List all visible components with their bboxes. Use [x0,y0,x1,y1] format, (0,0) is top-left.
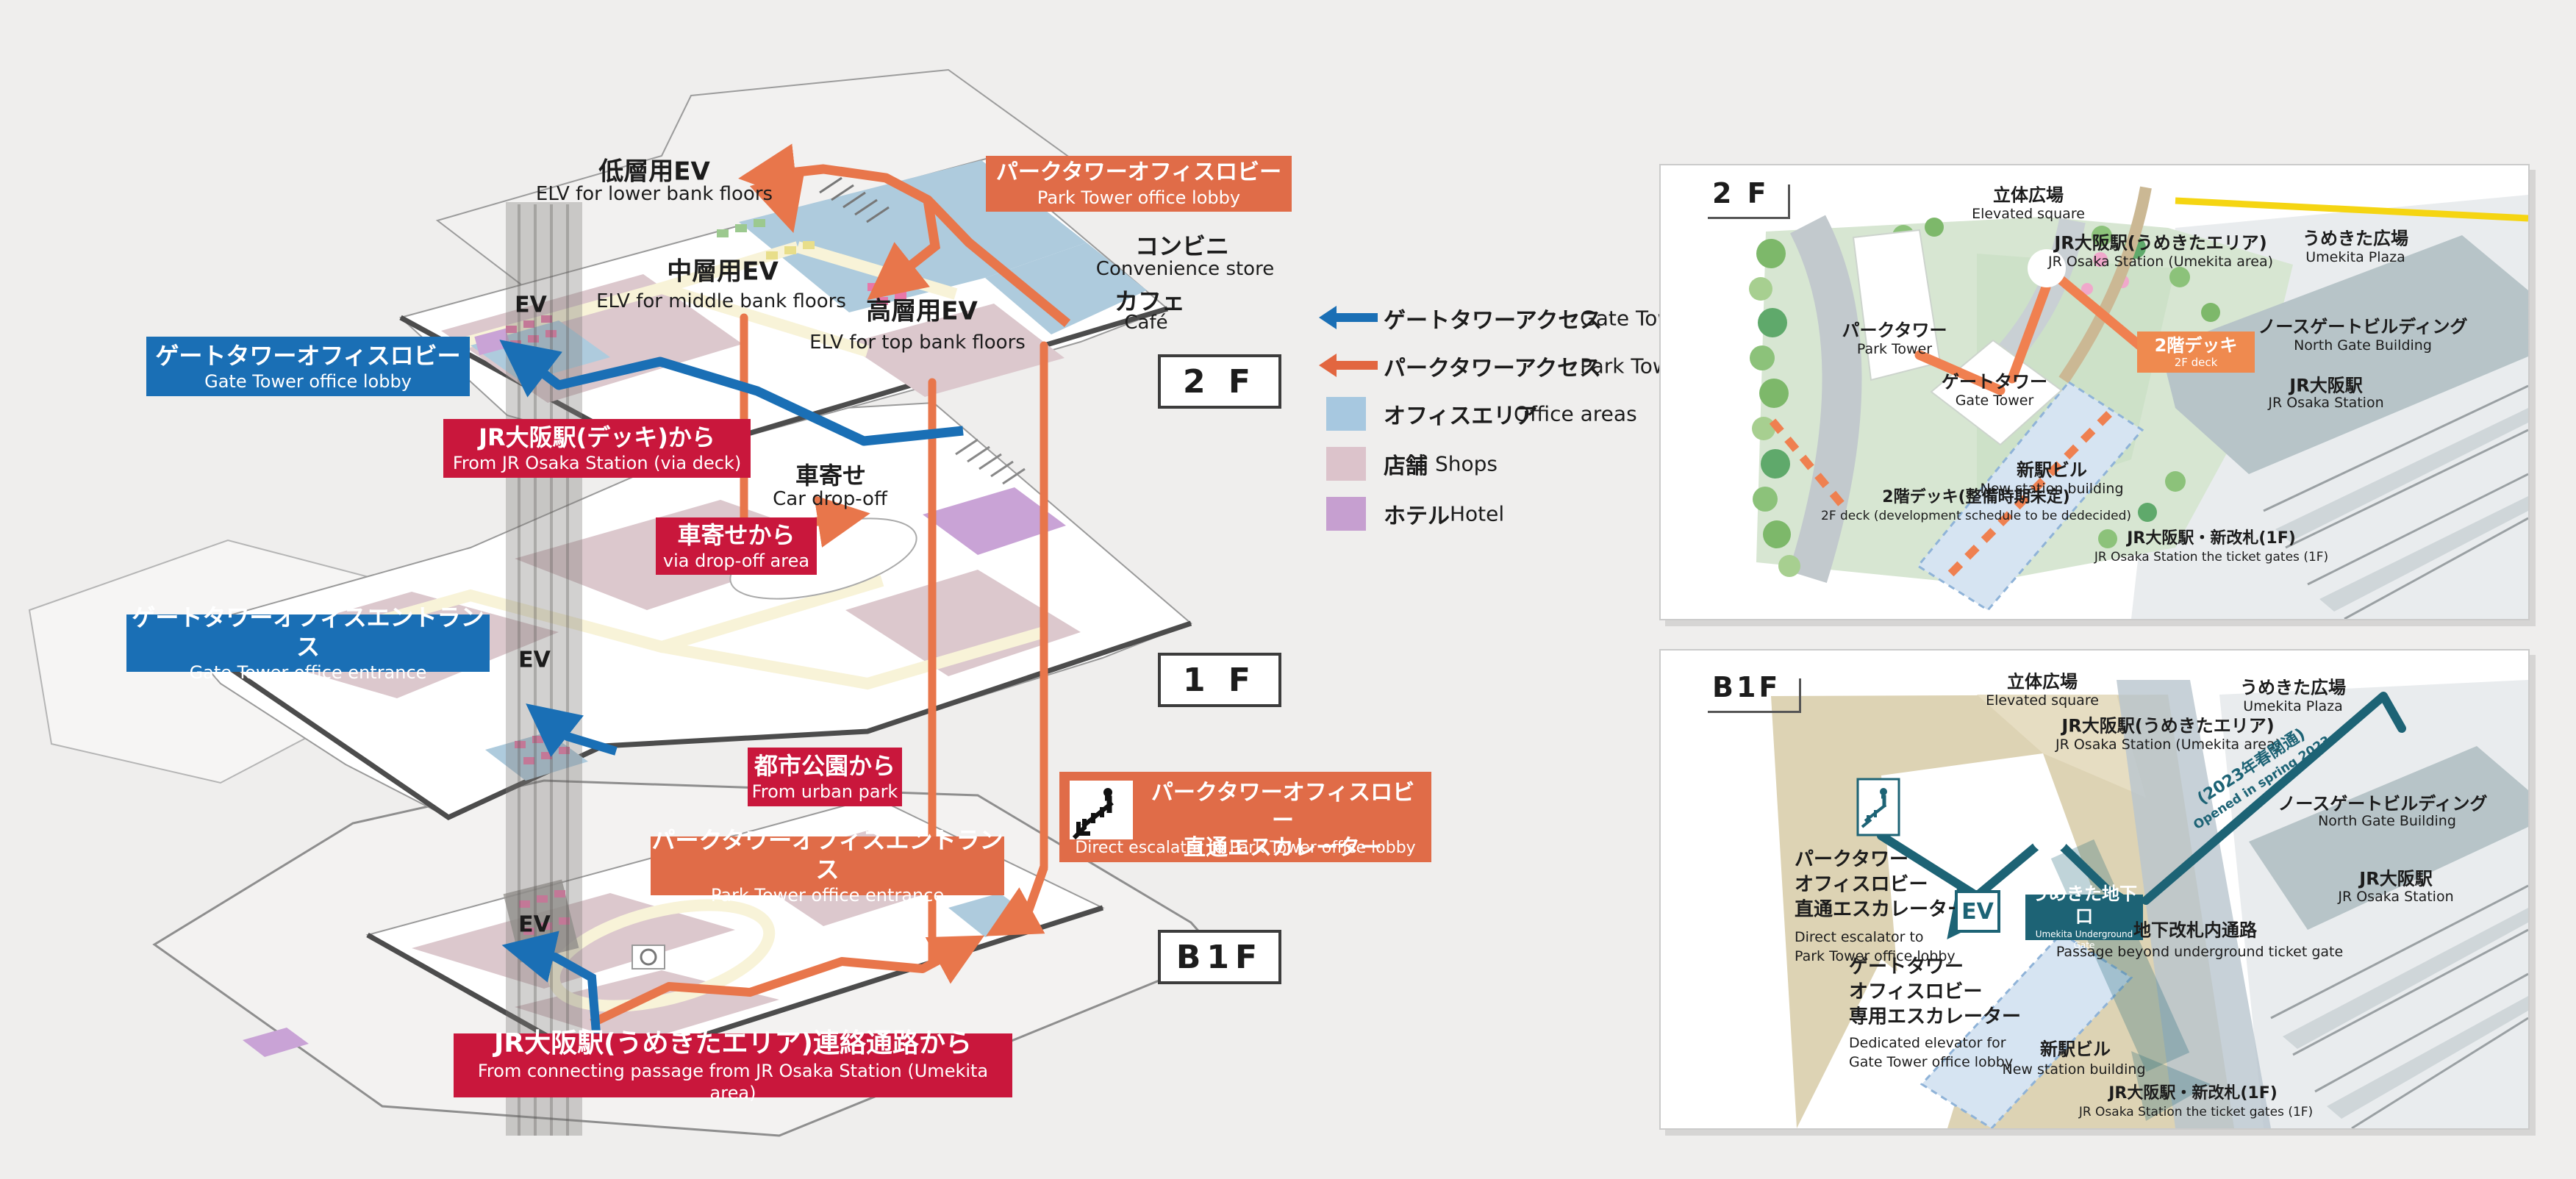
label-cafe-en: Café [1124,312,1167,334]
pb1f-direct-esc-jp1: パークタワー [1795,845,1908,872]
p2f-elevated-en: Elevated square [1972,206,2085,222]
pb1f-gate-esc-jp3: 専用エスカレーター [1849,1002,2021,1029]
pb1f-new-station-en: New station building [2002,1061,2145,1078]
callout-park-entrance-en: Park Tower office entrance [651,884,1004,906]
callout-from-deck: JR大阪駅(デッキ)から From JR Osaka Station (via … [443,419,751,478]
panel-b1f-card: B1F 立体広場 Elevated square JR大阪駅(うめきたエリア) … [1659,649,2530,1130]
p2f-new-station-jp: 新駅ビル [2017,456,2087,481]
legend-shops-jp: 店舗 [1384,448,1428,480]
callout-gate-entrance: ゲートタワーオフィスエントランス Gate Tower office entra… [126,614,490,672]
callout-gate-tower-lobby-en: Gate Tower office lobby [146,370,470,393]
p2f-north-gate-jp: ノースゲートビルディング [2258,312,2467,338]
p2f-north-gate-en: North Gate Building [2294,337,2432,354]
pb1f-jr-osaka-en: JR Osaka Station [2338,889,2453,905]
callout-gate-tower-lobby: ゲートタワーオフィスロビー Gate Tower office lobby [146,337,470,396]
label-ev-2f: EV [515,293,547,318]
panel-b1f-tag: B1F [1708,671,1801,713]
pb1f-north-gate-en: North Gate Building [2318,813,2456,829]
callout-park-tower-lobby-en: Park Tower office lobby [986,187,1292,209]
callout-park-entrance: パークタワーオフィスエントランス Park Tower office entra… [651,836,1004,895]
pb1f-underground-gate-badge: うめきた地下口 Umekita Underground Gate [2025,895,2143,940]
label-drop-off-en: Car drop-off [773,488,887,510]
legend-shops-swatch [1326,447,1366,481]
label-elv-middle-en: ELV for middle bank floors [596,290,846,312]
p2f-jr-osaka-jp: JR大阪駅 [2289,371,2362,397]
label-elv-top-en: ELV for top bank floors [809,332,1026,354]
callout-park-entrance-jp: パークタワーオフィスエントランス [651,825,1004,884]
pb1f-umekita-plaza-en: Umekita Plaza [2243,698,2343,714]
pb1f-passage-jp: 地下改札内通路 [2133,916,2257,942]
p2f-deck-badge: 2階デッキ 2F deck [2137,332,2255,373]
callout-from-umekita-passage-en: From connecting passage from JR Osaka St… [454,1060,1012,1104]
pb1f-new-gates-jp: JR大阪駅・新改札(1F) [2108,1080,2278,1103]
legend-park-arrow-icon [1319,352,1378,379]
pb1f-underground-gate-jp: うめきた地下口 [2025,883,2143,928]
pb1f-jr-umekita-jp: JR大阪駅(うめきたエリア) [2061,712,2274,737]
callout-from-urban-park-jp: 都市公園から [748,751,902,781]
umekita-access-infographic: { "iso": { "floor_tags": { "f2": "2 F", … [0,0,2576,1179]
floor-tag-2f: 2 F [1158,354,1281,409]
escalator-icon-b1f [1858,779,1899,835]
p2f-gate-tower-jp: ゲートタワー [1942,368,2047,393]
p2f-deck-undecided-jp: 2階デッキ(整備時期未定) [1882,484,2069,507]
pb1f-elevated-en: Elevated square [1986,692,2099,709]
floor-tag-1f: 1 F [1158,653,1281,707]
pb1f-new-gates-en: JR Osaka Station the ticket gates (1F) [2079,1105,2313,1119]
pb1f-elevated-jp: 立体広場 [2007,667,2078,693]
callout-from-umekita-passage: JR大阪駅(うめきたエリア)連絡通路から From connecting pas… [454,1033,1012,1097]
legend-shops-en: Shops [1435,452,1498,476]
pb1f-jr-umekita-en: JR Osaka Station (Umekita area) [2056,737,2280,753]
label-drop-off-jp: 車寄せ [795,457,866,491]
label-ev-b1f: EV [518,912,551,938]
legend-hotel-en: Hotel [1450,502,1504,526]
pb1f-direct-esc-en1: Direct escalator to [1795,929,1924,945]
panel-2f-tag: 2 F [1708,177,1790,219]
callout-park-tower-lobby-jp: パークタワーオフィスロビー [986,159,1292,187]
pb1f-north-gate-jp: ノースゲートビルディング [2278,789,2487,815]
callout-from-deck-en: From JR Osaka Station (via deck) [443,452,751,474]
legend-park-access-jp: パークタワーアクセス [1384,350,1601,382]
panel-2f-card: 2 F 立体広場 Elevated square JR大阪駅(うめきたエリア) … [1659,164,2530,620]
pb1f-ev-badge: EV [1955,890,2000,933]
pb1f-gate-esc-en1: Dedicated elevator for [1849,1035,2006,1051]
callout-gate-tower-lobby-jp: ゲートタワーオフィスロビー [146,341,470,370]
pb1f-umekita-plaza-jp: うめきた広場 [2240,673,2346,699]
legend-gate-access-jp: ゲートタワーアクセス [1384,302,1602,334]
label-elv-top-jp: 高層用EV [866,291,978,327]
p2f-gate-tower-en: Gate Tower [1956,393,2034,409]
pb1f-gate-esc-jp2: オフィスロビー [1849,977,1982,1004]
callout-from-urban-park-en: From urban park [748,781,902,803]
pb1f-gate-esc-jp1: ゲートタワー [1849,952,1964,979]
callout-direct-escalator: パークタワーオフィスロビー 直通エスカレーター Direct escalator… [1059,772,1431,862]
label-convenience-jp: コンビニ [1135,228,1229,262]
p2f-deck-badge-en: 2F deck [2137,356,2255,369]
p2f-jr-umekita-jp: JR大阪駅(うめきたエリア) [2054,229,2266,254]
p2f-new-gates-en: JR Osaka Station the ticket gates (1F) [2094,550,2328,565]
floor-tag-b1f: B1F [1158,930,1281,984]
callout-gate-entrance-jp: ゲートタワーオフィスエントランス [126,603,490,662]
callout-via-drop-off-en: via drop-off area [656,550,817,572]
p2f-deck-badge-jp: 2階デッキ [2137,335,2255,356]
p2f-jr-osaka-en: JR Osaka Station [2268,395,2383,411]
legend-office-en: Office areas [1514,402,1637,426]
label-elv-lower-jp: 低層用EV [598,151,710,187]
callout-from-deck-jp: JR大阪駅(デッキ)から [443,423,751,452]
callout-direct-escalator-en: Direct escalator to Park Tower office lo… [1059,838,1431,859]
p2f-jr-umekita-en: JR Osaka Station (Umekita area) [2048,254,2273,270]
label-elv-lower-en: ELV for lower bank floors [536,183,773,205]
pb1f-passage-en: Passage beyond underground ticket gate [2056,944,2343,960]
callout-via-drop-off: 車寄せから via drop-off area [656,517,817,575]
p2f-umekita-plaza-en: Umekita Plaza [2305,249,2405,265]
pb1f-direct-esc-jp2: オフィスロビー [1795,870,1928,897]
pb1f-direct-esc-jp3: 直通エスカレーター [1795,895,1967,922]
label-ev-1f: EV [518,648,551,673]
pb1f-gate-esc-en2: Gate Tower office lobby [1849,1054,2013,1070]
p2f-umekita-plaza-jp: うめきた広場 [2303,224,2408,250]
pb1f-new-station-jp: 新駅ビル [2040,1035,2111,1061]
label-convenience-en: Convenience store [1096,258,1274,280]
legend-hotel-swatch [1326,497,1366,531]
p2f-elevated-jp: 立体広場 [1993,181,2064,207]
legend-office-swatch [1326,397,1366,431]
callout-from-umekita-passage-jp: JR大阪駅(うめきたエリア)連絡通路から [454,1027,1012,1060]
escalator-icon [1070,781,1133,839]
p2f-new-gates-jp: JR大阪駅・新改札(1F) [2127,525,2296,548]
callout-park-tower-lobby: パークタワーオフィスロビー Park Tower office lobby [986,156,1292,212]
callout-gate-entrance-en: Gate Tower office entrance [126,662,490,684]
legend-hotel-jp: ホテル [1384,498,1450,530]
label-elv-middle-jp: 中層用EV [667,251,779,287]
route-node-b1f [2031,815,2069,853]
p2f-deck-undecided-en: 2F deck (development schedule to be dede… [1821,509,2131,523]
p2f-park-tower-jp: パークタワー [1842,316,1947,342]
pb1f-jr-osaka-jp: JR大阪駅 [2359,864,2432,890]
callout-via-drop-off-jp: 車寄せから [656,520,817,550]
legend-gate-arrow-icon [1319,304,1378,331]
p2f-park-tower-en: Park Tower [1857,341,1932,357]
callout-from-urban-park: 都市公園から From urban park [748,748,902,806]
callout-direct-escalator-jp1: パークタワーオフィスロビー [1142,779,1424,834]
